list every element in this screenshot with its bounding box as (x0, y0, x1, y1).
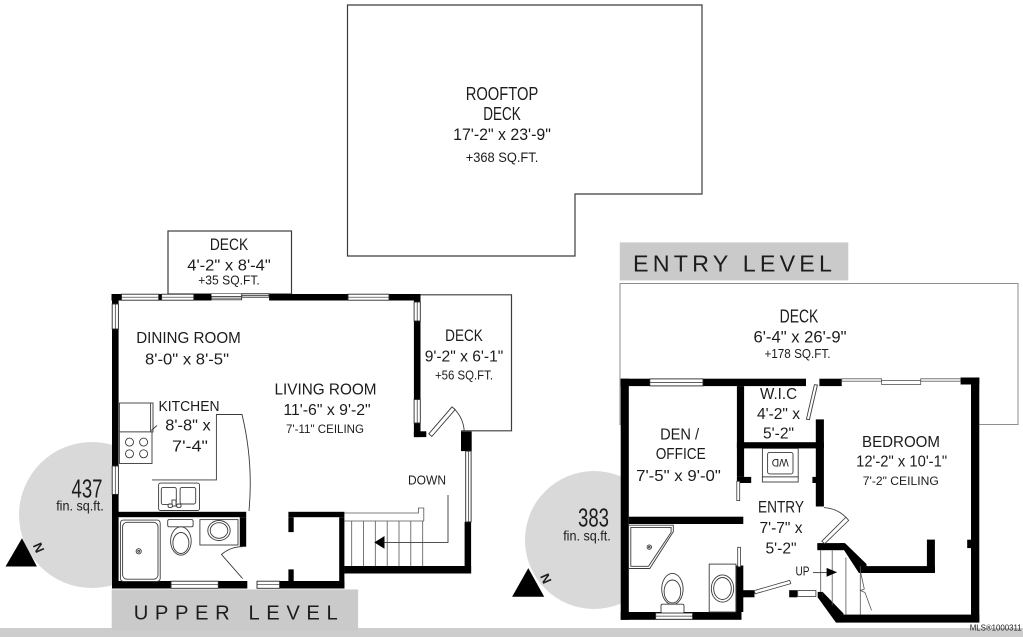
svg-text:8'-8" x: 8'-8" x (165, 418, 210, 435)
svg-text:8'-0" x 8'-5": 8'-0" x 8'-5" (145, 352, 229, 369)
svg-text:DECK: DECK (210, 236, 248, 254)
svg-text:7'-11" CEILING: 7'-11" CEILING (286, 422, 364, 436)
svg-text:9'-2" x 6'-1": 9'-2" x 6'-1" (425, 349, 504, 366)
svg-text:ENTRY LEVEL: ENTRY LEVEL (633, 251, 832, 277)
svg-text:11'-6" x 9'-2": 11'-6" x 9'-2" (283, 402, 370, 419)
svg-text:LIVING ROOM: LIVING ROOM (275, 381, 377, 398)
svg-text:+35 SQ.FT.: +35 SQ.FT. (198, 273, 260, 288)
svg-text:KITCHEN: KITCHEN (159, 398, 220, 415)
svg-text:BEDROOM: BEDROOM (862, 434, 940, 451)
svg-text:5'-2": 5'-2" (763, 426, 794, 443)
svg-text:+368 SQ.FT.: +368 SQ.FT. (466, 150, 539, 165)
svg-text:17'-2" x 23'-9": 17'-2" x 23'-9" (453, 125, 551, 144)
svg-text:DECK: DECK (445, 327, 483, 345)
svg-text:MLS®1000311: MLS®1000311 (970, 623, 1022, 633)
svg-text:WD: WD (772, 456, 789, 468)
svg-text:6'-4" x 26'-9": 6'-4" x 26'-9" (754, 328, 847, 347)
svg-text:12'-2" x 10'-1": 12'-2" x 10'-1" (856, 454, 947, 471)
svg-text:OFFICE: OFFICE (656, 446, 706, 463)
svg-text:DECK: DECK (483, 104, 520, 124)
svg-text:ROOFTOP: ROOFTOP (466, 84, 539, 104)
svg-text:4'-2" x: 4'-2" x (757, 406, 800, 423)
svg-text:7'-5" x 9'-0": 7'-5" x 9'-0" (636, 468, 721, 485)
svg-text:DINING ROOM: DINING ROOM (136, 330, 241, 347)
svg-text:ENTRY: ENTRY (758, 498, 804, 517)
svg-text:fin. sq.ft.: fin. sq.ft. (56, 498, 104, 514)
svg-text:7'-4": 7'-4" (172, 439, 208, 456)
svg-text:DEN /: DEN / (660, 427, 700, 444)
svg-text:fin. sq.ft.: fin. sq.ft. (563, 528, 611, 544)
svg-text:UP: UP (796, 565, 810, 579)
svg-text:5'-2": 5'-2" (766, 540, 797, 557)
svg-text:+178 SQ.FT.: +178 SQ.FT. (764, 347, 830, 361)
svg-text:7'-2" CEILING: 7'-2" CEILING (863, 474, 939, 488)
svg-text:7'-7" x: 7'-7" x (760, 520, 803, 537)
svg-text:UPPER LEVEL: UPPER LEVEL (134, 603, 338, 625)
svg-text:DOWN: DOWN (408, 474, 446, 488)
svg-text:W.I.C: W.I.C (760, 386, 797, 403)
svg-text:+56 SQ.FT.: +56 SQ.FT. (435, 368, 493, 383)
svg-text:DECK: DECK (780, 307, 819, 327)
